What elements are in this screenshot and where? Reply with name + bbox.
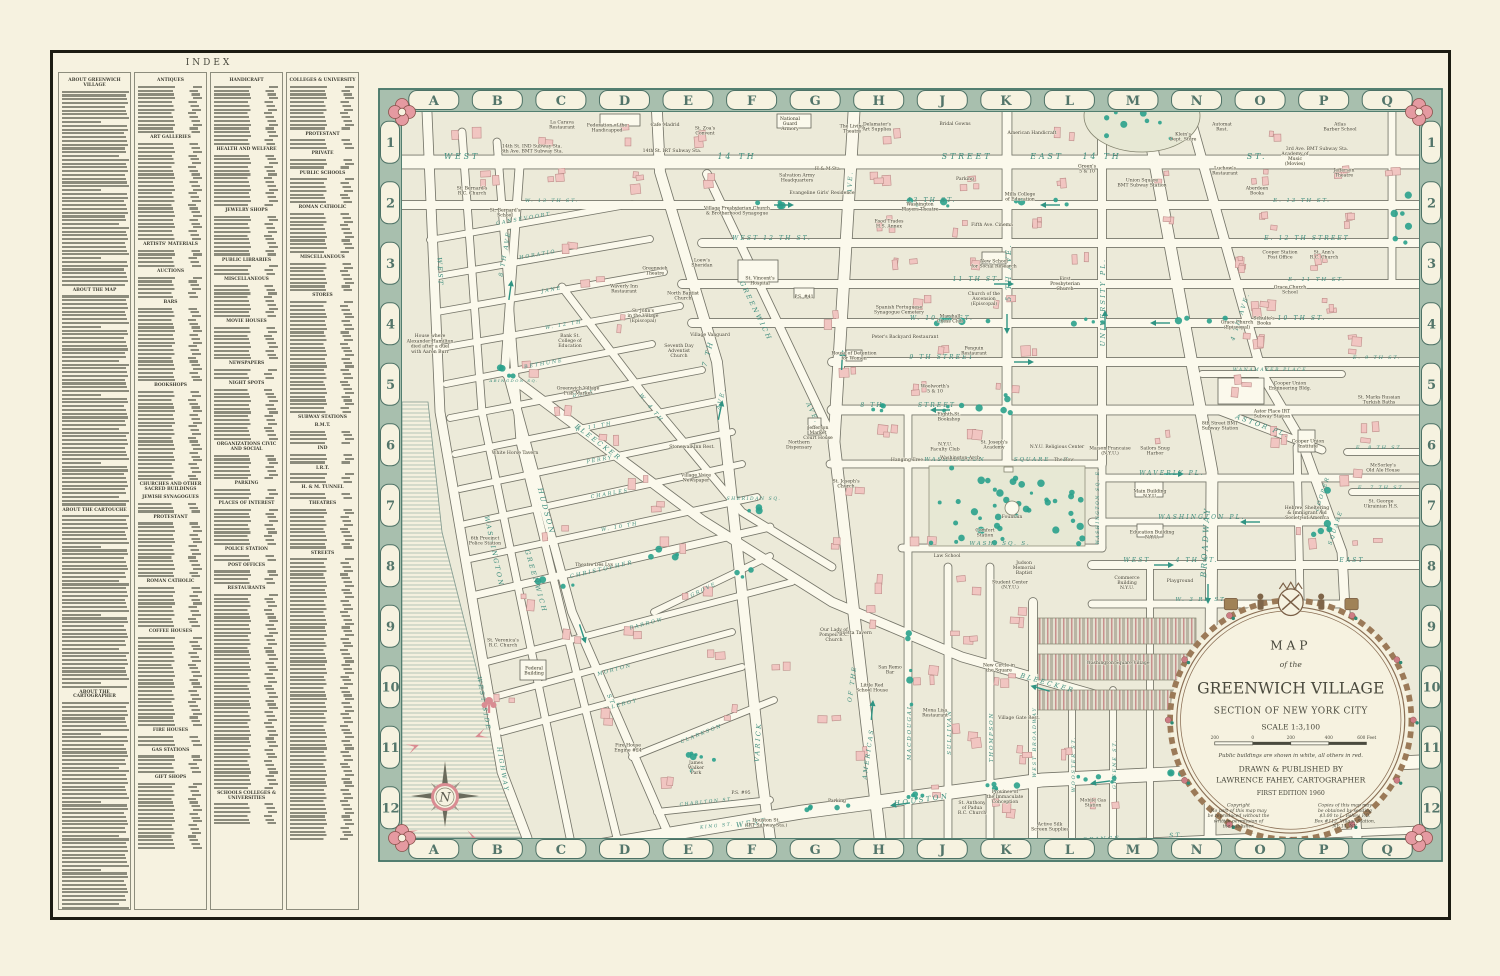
tree-icon [1004, 396, 1010, 402]
street-name-label: MACDOUGAL [907, 704, 913, 761]
index-entry-line [62, 503, 126, 505]
index-entry-line [214, 692, 276, 694]
index-entry-line [138, 308, 197, 310]
building [924, 295, 931, 303]
index-entry-line [138, 86, 202, 88]
index-entry-line [62, 420, 125, 422]
index-entry-line [290, 562, 349, 564]
index-entry-line [62, 234, 127, 236]
index-entry-line [138, 771, 201, 773]
index-entry-line [290, 454, 352, 456]
tree-icon [1403, 240, 1407, 244]
tree-icon [906, 676, 913, 683]
index-section-header: PLACES OF INTEREST [213, 502, 280, 507]
index-entry-line [138, 261, 199, 263]
index-entry-line [138, 158, 199, 160]
index-entry-line [62, 857, 126, 859]
index-entry-line [290, 543, 350, 545]
tree-icon [1393, 236, 1398, 241]
index-entry-line [290, 217, 351, 219]
building [732, 704, 738, 712]
index-entry-line [62, 546, 101, 548]
index-entry-line [138, 463, 197, 465]
building [931, 785, 938, 789]
index-entry-line [62, 326, 101, 328]
index-entry-line [290, 407, 349, 409]
index-entry-line [62, 744, 124, 746]
index-entry-line [138, 277, 202, 279]
index-entry-line [138, 471, 201, 473]
index-column-antiques-gifts: ANTIQUESART GALLERIESARTISTS' MATERIALSA… [134, 72, 207, 910]
index-entry-line [62, 580, 119, 582]
index-entry-line [62, 534, 126, 536]
index-entry-line [138, 173, 200, 175]
street-name-label: WOOSTER ST. [1071, 736, 1077, 793]
index-entry-line [138, 372, 198, 374]
index-section-header: GIFT SHOPS [137, 776, 204, 781]
building [1271, 438, 1280, 448]
index-entry-line [138, 690, 197, 692]
grid-tab-letter-label: L [1065, 843, 1074, 858]
index-entry-line [290, 604, 351, 606]
building [1372, 422, 1379, 432]
landmark-label: Evangeline Girls' Residence [789, 190, 854, 196]
index-entry-line [290, 213, 349, 215]
index-entry-line [290, 668, 352, 670]
building [1308, 538, 1316, 549]
index-entry-line [290, 365, 354, 367]
index-entry-line [62, 140, 127, 142]
building [909, 259, 917, 265]
index-entry-line [290, 458, 354, 460]
index-entry-line [138, 116, 198, 118]
index-entry-line [62, 413, 127, 415]
index-entry-line [290, 702, 350, 704]
tree-icon [1000, 407, 1006, 413]
tree-icon [1084, 318, 1087, 321]
index-entry-line [62, 733, 101, 735]
index-entry-line [290, 577, 350, 579]
index-section-header: B.M.T. [289, 424, 356, 429]
landmark-label: St. Veronica'sR.C. Church [487, 637, 519, 648]
index-entry-line [138, 391, 199, 393]
index-entry-line [138, 456, 200, 458]
landmark-label: Luchow'sRestaurant [1212, 165, 1238, 176]
tree-icon [1013, 476, 1018, 481]
index-entry-line [62, 778, 127, 780]
index-entry-line [290, 638, 349, 640]
index-entry-line [214, 273, 275, 275]
index-entry-line [62, 280, 128, 282]
tree-icon [741, 575, 745, 579]
index-entry-line [290, 86, 354, 88]
index-entry-line [214, 609, 272, 611]
index-entry-line [290, 815, 350, 817]
cartouche-edition: FIRST EDITION 1960 [1257, 790, 1325, 797]
index-entry-line [62, 621, 128, 623]
index-entry-line [214, 741, 276, 743]
index-entry-line [214, 493, 278, 495]
landmark-label: P.S. #41 [794, 294, 813, 300]
index-entry-line [62, 854, 125, 856]
index-entry-line [62, 454, 127, 456]
index-entry-line [62, 147, 125, 149]
index-section-header: ABOUT GREENWICH VILLAGE [61, 79, 128, 89]
index-entry-line [62, 299, 126, 301]
index-entry-line [62, 667, 125, 669]
index-entry-line [214, 269, 273, 271]
index-entry-line [138, 418, 200, 420]
index-entry-line [214, 342, 276, 344]
index-entry-line [62, 144, 128, 146]
index-entry-line [290, 197, 350, 199]
tree-icon [993, 488, 997, 492]
index-entry-line [62, 714, 128, 716]
tree-icon [1167, 769, 1174, 776]
tree-icon [1014, 782, 1020, 788]
index-entry-line [138, 120, 200, 122]
building [1263, 169, 1268, 174]
building [1344, 221, 1349, 228]
index-entry-line [138, 664, 196, 666]
index-entry-line [138, 809, 202, 811]
tree-icon [991, 782, 996, 787]
index-entry-line [290, 362, 352, 364]
building [1112, 802, 1120, 809]
index-entry-line [290, 232, 352, 234]
index-entry-line [62, 386, 127, 388]
building [1012, 385, 1019, 392]
index-entry-line [214, 350, 274, 352]
index-entry-line [138, 330, 202, 332]
grid-tab-number-label: 10 [1422, 680, 1440, 695]
building [555, 174, 564, 182]
index-entry-line [214, 173, 277, 175]
index-entry-line [214, 635, 273, 637]
index-section-header: H. & M. TUNNEL [289, 486, 356, 491]
landmark-label: Parking [956, 176, 974, 182]
index-entry-line [62, 801, 101, 803]
index-entry-line [290, 396, 350, 398]
index-entry-line [290, 305, 348, 307]
index-entry-line [62, 812, 124, 814]
tree-icon [997, 526, 1002, 531]
index-entry-line [62, 770, 129, 772]
building [1242, 382, 1252, 387]
index-entry-line [138, 656, 199, 658]
map-interior: WEST14 THSTREETEAST14 THST.W. 13 TH ST.1… [402, 88, 1419, 850]
index-section-header: ORGANIZATIONS CIVIC AND SOCIAL [213, 443, 280, 453]
building [930, 675, 934, 684]
index-entry-line [138, 759, 202, 761]
index-entry-line [214, 787, 273, 789]
landmark-label: Province ofthe ImmaculateConception [987, 789, 1024, 805]
index-entry-line [62, 477, 126, 479]
index-entry-line [138, 843, 200, 845]
index-entry-line [214, 219, 278, 221]
index-entry-line [290, 105, 351, 107]
landmark-label: St. Zoa'sConvent [695, 125, 716, 136]
index-entry-line [214, 700, 274, 702]
index-entry-line [290, 713, 349, 715]
index-entry-line [290, 819, 352, 821]
building [996, 383, 1001, 389]
index-entry-line [138, 334, 198, 336]
tree-icon [571, 584, 574, 587]
index-entry-line [138, 422, 202, 424]
index-entry-line [62, 435, 126, 437]
index-entry-line [290, 694, 352, 696]
street-name-label: WASHINGTON SQ. E. [1095, 467, 1101, 544]
tree-icon [1120, 121, 1127, 128]
building [1239, 265, 1245, 273]
grid-tab-letter-label: F [747, 94, 757, 109]
building [910, 537, 919, 546]
index-entry-line [62, 443, 128, 445]
street-name-label: 10 TH ST. [1278, 315, 1327, 322]
tree-icon [694, 753, 697, 756]
washington-arch [1004, 467, 1013, 472]
index-entry-line [290, 399, 352, 401]
index-entry-line [138, 452, 198, 454]
grid-tab-letter-label: M [1126, 94, 1140, 109]
building [451, 130, 458, 140]
index-entry-line [290, 766, 350, 768]
building [952, 228, 957, 237]
index-section-header: POST OFFICES [213, 564, 280, 569]
index-entry-line [214, 489, 276, 491]
index-section-header: HANDICRAFT [213, 79, 280, 84]
index-entry-line [138, 621, 198, 623]
index-entry-line [138, 90, 198, 92]
street-name-label: E. 7 TH ST. [1357, 485, 1406, 491]
tree-icon [995, 514, 1002, 521]
index-entry-line [290, 347, 350, 349]
tree-icon [949, 465, 954, 470]
index-entry-line [214, 389, 272, 391]
index-entry-line [290, 763, 348, 765]
index-section-header: MOVIE HOUSES [213, 320, 280, 325]
tree-icon [906, 630, 912, 636]
index-entry-line [62, 644, 126, 646]
index-entry-line [62, 159, 129, 161]
building [1033, 219, 1038, 228]
index-entry-line [62, 348, 128, 350]
tree-icon [1104, 115, 1109, 120]
index-entry-line [62, 284, 125, 286]
index-entry-line [62, 763, 126, 765]
index-entry-line [214, 427, 272, 429]
index-entry-line [290, 732, 352, 734]
index-entry-line [62, 136, 126, 138]
landmark-label: St. Joseph'sAcademy [980, 439, 1008, 450]
index-entry-line [290, 101, 349, 103]
index-entry-line [290, 546, 352, 548]
index-entry-line [290, 558, 354, 560]
index-entry-line [214, 669, 278, 671]
index-entry-line [62, 129, 128, 131]
index-entry-line [138, 219, 198, 221]
index-title: INDEX [58, 58, 360, 68]
index-entry-line [62, 595, 128, 597]
index-entry-line [214, 509, 278, 511]
street-name-label: 14 TH [717, 152, 756, 161]
landmark-label: Mills Collegeof Education [1005, 191, 1036, 202]
index-entry-line [62, 117, 129, 119]
tree-icon [1096, 774, 1101, 779]
landmark-label: Washington Square Village [1087, 660, 1150, 666]
index-entry-line [138, 105, 199, 107]
landmark-label: FederalBuilding [524, 665, 544, 676]
leaf-icon [1232, 617, 1235, 620]
index-entry-line [290, 221, 353, 223]
index-entry-line [290, 289, 352, 291]
index-entry-line [138, 215, 202, 217]
index-entry-line [214, 377, 274, 379]
index-entry-line [290, 350, 352, 352]
index-entry-line [214, 654, 276, 656]
index-entry-line [62, 561, 126, 563]
index-entry-line [290, 159, 352, 161]
index-entry-line [62, 793, 127, 795]
landmark-label: Spanish PortugueseSynagogue Cemetery [874, 304, 924, 315]
building [875, 583, 882, 594]
index-entry-line [214, 745, 278, 747]
index-entry-line [290, 354, 354, 356]
street-name-label: SHERIDAN SQ. [727, 496, 782, 502]
index-entry-line [290, 611, 348, 613]
index-entry-line [62, 375, 128, 377]
grid-tab-number-label: 11 [381, 741, 399, 756]
street-name-label: ST. [1247, 152, 1268, 161]
building [667, 777, 674, 786]
index-entry-line [62, 390, 129, 392]
index-section-header: ARTISTS' MATERIALS [137, 243, 204, 248]
index-entry-line [62, 250, 127, 252]
index-entry-line [62, 345, 127, 347]
tree-icon [1207, 318, 1212, 323]
index-entry-line [138, 349, 199, 351]
index-entry-line [290, 608, 353, 610]
index-entry-line [62, 542, 129, 544]
index-entry-line [138, 507, 198, 509]
index-entry-line [62, 846, 127, 848]
index-entry-line [214, 760, 272, 762]
index-entry-line [214, 726, 274, 728]
index-entry-line [62, 876, 128, 878]
index-entry-line [138, 817, 200, 819]
index-entry-line [290, 759, 353, 761]
index-entry-line [62, 850, 128, 852]
index-entry-line [290, 687, 348, 689]
index-entry-line [138, 660, 201, 662]
index-entry-line [138, 694, 199, 696]
index-entry-line [138, 713, 202, 715]
tree-icon [1079, 535, 1085, 541]
index-entry-line [290, 331, 349, 333]
index-entry-line [62, 519, 126, 521]
building [911, 390, 919, 396]
street-name-label: 14 TH [1082, 152, 1121, 161]
index-entry-line [214, 105, 275, 107]
landmark-label: 8th Street BMTSubway Station [1202, 420, 1239, 431]
street-name-label: SQUARE [1014, 457, 1050, 463]
index-entry-line [138, 207, 198, 209]
index-section-header: PUBLIC SCHOOLS [289, 172, 356, 177]
street-name-label: WAVERLY PL. [1139, 470, 1205, 477]
tree-icon [1311, 532, 1316, 537]
index-entry-line [290, 381, 348, 383]
index-entry-line [290, 683, 353, 685]
index-entry-line [214, 93, 276, 95]
building [1353, 469, 1362, 478]
grid-tab-letter-label: K [1000, 94, 1012, 109]
tree-icon [1045, 499, 1051, 505]
index-entry-line [138, 686, 202, 688]
index-entry-line [62, 360, 119, 362]
landmark-label: St. Anthonyof PaduaR.C. Church [958, 800, 986, 816]
index-entry-line [214, 688, 274, 690]
building [1022, 752, 1032, 757]
index-entry-line [62, 428, 119, 430]
index-entry-line [62, 789, 126, 791]
grid-tab-letter-label: Q [1382, 94, 1393, 109]
index-entry-line [290, 516, 349, 518]
leaf-icon [1187, 661, 1190, 664]
landmark-label: JeffersonTheatre [1333, 167, 1355, 178]
index-entry-line [138, 280, 197, 282]
grid-tab-letter-label: Q [1382, 843, 1393, 858]
landmark-label: Village Vanguard [689, 332, 730, 338]
index-entry-line [290, 224, 348, 226]
index-entry-line [138, 326, 200, 328]
index-entry-line [138, 151, 202, 153]
building [892, 260, 898, 270]
index-entry-line [214, 662, 274, 664]
index-entry-line [214, 574, 278, 576]
building [548, 176, 554, 181]
index-entry-line [138, 606, 197, 608]
index-entry-line [62, 706, 126, 708]
landmark-label: Fifth Ave. Cinema [971, 222, 1013, 228]
index-entry-line [62, 838, 129, 840]
index-entry-line [138, 459, 202, 461]
index-entry-line [62, 185, 129, 187]
index-entry-line [290, 182, 349, 184]
index-section-header: NIGHT SPOTS [213, 382, 280, 387]
building [708, 174, 715, 181]
index-entry-line [214, 819, 274, 821]
tree-icon [834, 805, 839, 810]
grid-tab-letter-label: E [683, 843, 693, 858]
scale-tick-label: 200 [1211, 736, 1219, 741]
landmark-label: Parking [828, 798, 846, 804]
index-entry-line [138, 444, 200, 446]
index-entry-line [214, 528, 275, 530]
building [913, 678, 920, 685]
index-entry-line [138, 429, 199, 431]
index-entry-line [138, 648, 202, 650]
index-entry-line [138, 284, 199, 286]
building [494, 694, 499, 702]
index-entry-line [62, 163, 126, 165]
tree-icon [909, 669, 912, 672]
index-entry-line [214, 458, 276, 460]
grid-tab-letter-label: K [1000, 843, 1012, 858]
landmark-label: Mona LisaRestaurant [922, 707, 948, 718]
grid-tab-letter-label: J [938, 843, 945, 858]
index-entry-line [62, 527, 128, 529]
